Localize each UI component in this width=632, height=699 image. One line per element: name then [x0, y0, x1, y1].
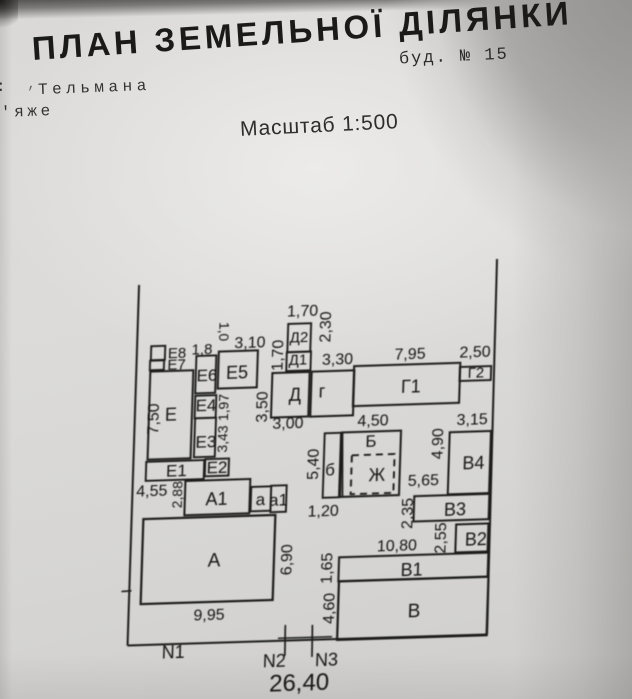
svg-text:3,43: 3,43	[214, 425, 231, 453]
svg-text:б: б	[325, 460, 336, 479]
svg-text:N3: N3	[315, 650, 339, 671]
svg-text:В2: В2	[465, 529, 488, 550]
svg-text:4,55: 4,55	[136, 483, 168, 501]
svg-text:Е2: Е2	[206, 458, 227, 478]
svg-text:1,0: 1,0	[216, 322, 233, 342]
svg-text:1,20: 1,20	[307, 503, 339, 521]
svg-text:1,8: 1,8	[191, 341, 212, 359]
svg-text:В: В	[407, 601, 420, 622]
svg-text:А1: А1	[205, 489, 228, 510]
svg-text:5,65: 5,65	[408, 472, 440, 490]
svg-text:26,40: 26,40	[269, 669, 330, 698]
svg-text:В3: В3	[444, 499, 467, 520]
svg-text:7,95: 7,95	[394, 346, 426, 364]
svg-text:Е5: Е5	[226, 362, 249, 383]
svg-text:2,55: 2,55	[432, 522, 450, 554]
svg-text:3,15: 3,15	[456, 411, 488, 429]
svg-text:Д2: Д2	[289, 329, 308, 347]
svg-text:Е4: Е4	[195, 396, 216, 416]
svg-text:2,50: 2,50	[459, 344, 491, 362]
svg-text:N2: N2	[262, 651, 286, 672]
svg-text:3,00: 3,00	[272, 415, 304, 433]
svg-text:В4: В4	[462, 453, 485, 474]
svg-text:10,80: 10,80	[377, 537, 418, 555]
svg-text:Б: Б	[365, 432, 377, 451]
svg-text:1,65: 1,65	[318, 552, 336, 584]
svg-text:3,10: 3,10	[234, 334, 266, 352]
svg-text:Е6: Е6	[196, 366, 217, 386]
svg-text:3,30: 3,30	[322, 351, 354, 369]
svg-text:3,50: 3,50	[254, 391, 272, 423]
svg-text:6,90: 6,90	[278, 544, 296, 576]
svg-text:Ж: Ж	[368, 465, 386, 486]
svg-text:2,35: 2,35	[399, 497, 417, 529]
svg-text:1,97: 1,97	[215, 393, 232, 421]
svg-text:В1: В1	[400, 560, 423, 581]
svg-text:г: г	[318, 381, 326, 401]
svg-text:а: а	[255, 490, 266, 509]
svg-text:4,50: 4,50	[357, 412, 389, 430]
svg-text:4,60: 4,60	[321, 592, 339, 624]
svg-text:Е: Е	[165, 404, 178, 424]
svg-text:Г1: Г1	[401, 376, 421, 397]
svg-text:1,70: 1,70	[269, 339, 287, 371]
svg-text:Д1: Д1	[288, 351, 307, 369]
svg-text:N1: N1	[161, 642, 185, 663]
svg-text:5,40: 5,40	[305, 448, 323, 480]
svg-text:9,95: 9,95	[193, 606, 225, 624]
svg-text:1,70: 1,70	[287, 303, 319, 321]
svg-text:Г2: Г2	[467, 364, 484, 382]
svg-text:Е7: Е7	[167, 356, 186, 374]
svg-text:2,30: 2,30	[317, 311, 335, 343]
svg-text:а1: а1	[269, 490, 289, 510]
svg-text:4,90: 4,90	[430, 428, 448, 460]
svg-text:2,88: 2,88	[169, 481, 186, 509]
svg-text:А: А	[207, 550, 221, 571]
svg-text:Д: Д	[289, 385, 302, 405]
svg-text:Е1: Е1	[166, 461, 187, 481]
svg-text:7,50: 7,50	[145, 403, 163, 435]
